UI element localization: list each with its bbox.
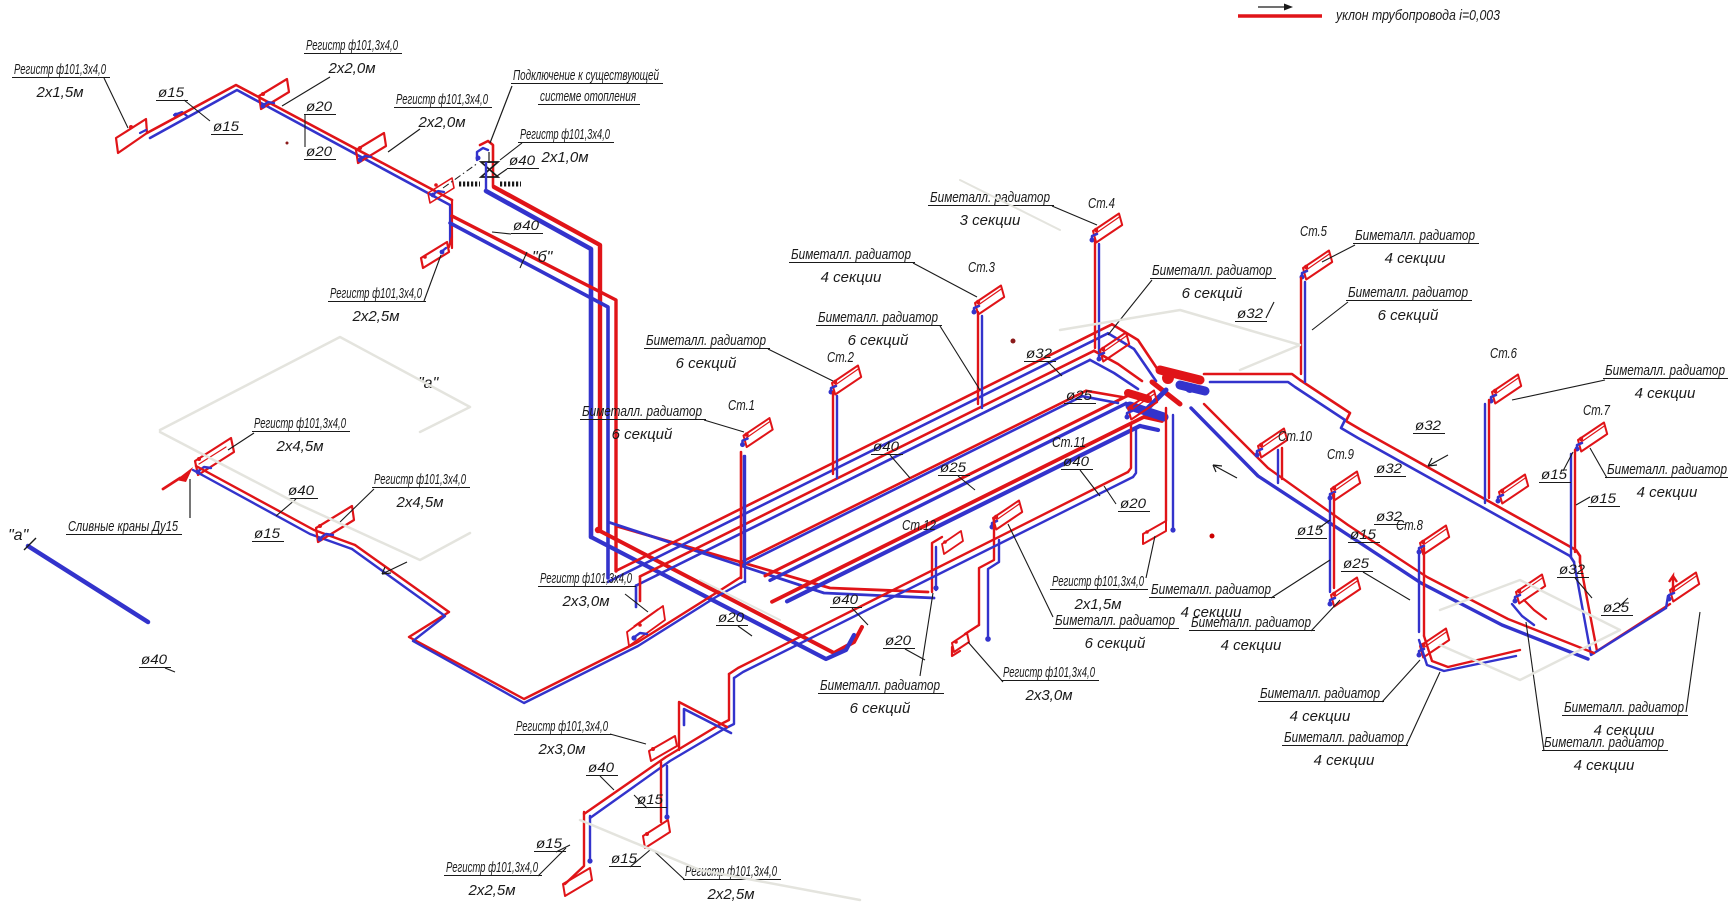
svg-text:ø15: ø15 <box>1350 526 1376 542</box>
svg-text:2х4,5м: 2х4,5м <box>276 438 324 455</box>
svg-text:Регистр ф101,3х4,0: Регистр ф101,3х4,0 <box>446 859 538 876</box>
svg-text:2х2,5м: 2х2,5м <box>352 308 400 325</box>
svg-text:Регистр ф101,3х4,0: Регистр ф101,3х4,0 <box>516 718 608 735</box>
svg-text:Биметалл. радиатор: Биметалл. радиатор <box>1607 461 1727 478</box>
svg-text:Ст.10: Ст.10 <box>1278 428 1313 445</box>
svg-text:ø32: ø32 <box>1376 460 1402 476</box>
svg-text:ø15: ø15 <box>1590 490 1616 506</box>
svg-text:Регистр ф101,3х4,0: Регистр ф101,3х4,0 <box>540 570 632 587</box>
svg-text:ø20: ø20 <box>718 609 744 625</box>
svg-text:Биметалл. радиатор: Биметалл. радиатор <box>1605 362 1725 379</box>
svg-text:ø25: ø25 <box>1066 387 1092 403</box>
svg-text:Ст.9: Ст.9 <box>1327 446 1354 463</box>
svg-text:3 секции: 3 секции <box>960 212 1021 229</box>
svg-text:ø40: ø40 <box>509 152 535 168</box>
svg-text:Регистр ф101,3х4,0: Регистр ф101,3х4,0 <box>520 126 610 143</box>
svg-text:Ст.6: Ст.6 <box>1490 345 1517 362</box>
svg-text:6 секций: 6 секций <box>612 426 673 443</box>
svg-text:Биметалл. радиатор: Биметалл. радиатор <box>646 332 766 349</box>
svg-text:Биметалл. радиатор: Биметалл. радиатор <box>1152 262 1272 279</box>
svg-text:ø20: ø20 <box>306 98 332 114</box>
svg-text:4 секции: 4 секции <box>1635 385 1696 402</box>
svg-text:ø40: ø40 <box>141 651 167 667</box>
svg-text:уклон трубопровода i=0,003: уклон трубопровода i=0,003 <box>1335 7 1500 24</box>
svg-text:ø40: ø40 <box>588 759 614 775</box>
svg-text:Биметалл. радиатор: Биметалл. радиатор <box>1191 614 1311 631</box>
svg-text:ø15: ø15 <box>536 835 562 851</box>
svg-text:ø15: ø15 <box>637 791 663 807</box>
svg-text:ø40: ø40 <box>513 217 539 233</box>
svg-text:Ст.7: Ст.7 <box>1583 402 1610 419</box>
svg-text:2х3,0м: 2х3,0м <box>562 593 610 610</box>
svg-text:Биметалл. радиатор: Биметалл. радиатор <box>1544 734 1664 751</box>
svg-text:Биметалл. радиатор: Биметалл. радиатор <box>1260 685 1380 702</box>
svg-text:ø40: ø40 <box>832 591 858 607</box>
svg-text:Ст.8: Ст.8 <box>1396 517 1423 534</box>
svg-text:Ст.12: Ст.12 <box>902 517 937 534</box>
svg-text:Регистр ф101,3х4,0: Регистр ф101,3х4,0 <box>396 91 488 108</box>
svg-text:4 секции: 4 секции <box>1221 637 1282 654</box>
svg-text:4 секции: 4 секции <box>1290 708 1351 725</box>
svg-text:4 секции: 4 секции <box>1314 752 1375 769</box>
svg-text:Ст.1: Ст.1 <box>728 397 755 414</box>
svg-text:ø32: ø32 <box>1237 305 1263 321</box>
svg-text:Регистр ф101,3х4,0: Регистр ф101,3х4,0 <box>254 415 346 432</box>
svg-text:ø40: ø40 <box>873 438 899 454</box>
svg-text:"б": "б" <box>532 249 554 266</box>
svg-text:6 секций: 6 секций <box>1378 307 1439 324</box>
svg-text:ø40: ø40 <box>1063 453 1089 469</box>
svg-text:2х1,5м: 2х1,5м <box>36 84 84 101</box>
svg-text:ø25: ø25 <box>940 459 966 475</box>
svg-text:2х2,5м: 2х2,5м <box>707 886 755 903</box>
svg-text:2х3,0м: 2х3,0м <box>538 741 586 758</box>
svg-text:Регистр ф101,3х4,0: Регистр ф101,3х4,0 <box>330 285 422 302</box>
svg-text:2х2,0м: 2х2,0м <box>418 114 466 131</box>
svg-text:Регистр ф101,3х4,0: Регистр ф101,3х4,0 <box>1003 664 1095 681</box>
svg-text:2х1,0м: 2х1,0м <box>541 149 589 166</box>
svg-text:Биметалл. радиатор: Биметалл. радиатор <box>1355 227 1475 244</box>
svg-text:ø15: ø15 <box>213 118 239 134</box>
svg-text:Регистр ф101,3х4,0: Регистр ф101,3х4,0 <box>685 863 777 880</box>
svg-text:ø20: ø20 <box>306 143 332 159</box>
svg-text:Биметалл. радиатор: Биметалл. радиатор <box>930 189 1050 206</box>
svg-text:Ст.11: Ст.11 <box>1052 434 1086 451</box>
svg-text:Биметалл. радиатор: Биметалл. радиатор <box>1284 729 1404 746</box>
svg-text:Биметалл. радиатор: Биметалл. радиатор <box>818 309 938 326</box>
svg-text:6 секций: 6 секций <box>848 332 909 349</box>
svg-text:Ст.2: Ст.2 <box>827 349 854 366</box>
svg-text:Регистр ф101,3х4,0: Регистр ф101,3х4,0 <box>14 61 106 78</box>
svg-text:Биметалл. радиатор: Биметалл. радиатор <box>820 677 940 694</box>
svg-text:ø20: ø20 <box>885 632 911 648</box>
svg-text:Биметалл. радиатор: Биметалл. радиатор <box>791 246 911 263</box>
svg-text:Биметалл. радиатор: Биметалл. радиатор <box>1055 612 1175 629</box>
svg-text:2х3,0м: 2х3,0м <box>1025 687 1073 704</box>
svg-text:Подключение к существующей: Подключение к существующей <box>513 67 659 84</box>
svg-text:Биметалл. радиатор: Биметалл. радиатор <box>582 403 702 420</box>
svg-text:2х2,0м: 2х2,0м <box>328 60 376 77</box>
svg-text:Регистр ф101,3х4,0: Регистр ф101,3х4,0 <box>1052 573 1144 590</box>
svg-text:6 секций: 6 секций <box>676 355 737 372</box>
svg-text:ø40: ø40 <box>288 482 314 498</box>
svg-text:Сливные краны Ду15: Сливные краны Ду15 <box>68 518 178 535</box>
svg-text:ø32: ø32 <box>1559 561 1585 577</box>
svg-text:4 секции: 4 секции <box>1385 250 1446 267</box>
svg-text:ø32: ø32 <box>1026 345 1052 361</box>
svg-text:Регистр ф101,3х4,0: Регистр ф101,3х4,0 <box>374 471 466 488</box>
svg-text:2х1,5м: 2х1,5м <box>1074 596 1122 613</box>
svg-text:ø15: ø15 <box>254 525 280 541</box>
svg-text:Ст.3: Ст.3 <box>968 259 995 276</box>
svg-text:"а": "а" <box>8 527 30 544</box>
svg-text:6 секций: 6 секций <box>1182 285 1243 302</box>
svg-text:Ст.5: Ст.5 <box>1300 223 1327 240</box>
svg-text:6 секций: 6 секций <box>850 700 911 717</box>
svg-text:6 секций: 6 секций <box>1085 635 1146 652</box>
svg-text:ø15: ø15 <box>1297 522 1323 538</box>
svg-text:ø15: ø15 <box>158 84 184 100</box>
svg-text:системе отопления: системе отопления <box>540 88 636 105</box>
svg-text:ø15: ø15 <box>1541 466 1567 482</box>
svg-text:Ст.4: Ст.4 <box>1088 195 1115 212</box>
svg-text:2х2,5м: 2х2,5м <box>468 882 516 899</box>
svg-text:4 секции: 4 секции <box>1574 757 1635 774</box>
svg-text:ø20: ø20 <box>1120 495 1146 511</box>
svg-text:4 секции: 4 секции <box>1637 484 1698 501</box>
svg-text:Биметалл. радиатор: Биметалл. радиатор <box>1564 699 1684 716</box>
svg-text:2х4,5м: 2х4,5м <box>396 494 444 511</box>
svg-text:Регистр ф101,3х4,0: Регистр ф101,3х4,0 <box>306 37 398 54</box>
svg-text:ø32: ø32 <box>1415 417 1441 433</box>
svg-text:ø25: ø25 <box>1343 555 1369 571</box>
svg-text:Биметалл. радиатор: Биметалл. радиатор <box>1348 284 1468 301</box>
svg-text:Биметалл. радиатор: Биметалл. радиатор <box>1151 581 1271 598</box>
svg-text:4 секции: 4 секции <box>821 269 882 286</box>
